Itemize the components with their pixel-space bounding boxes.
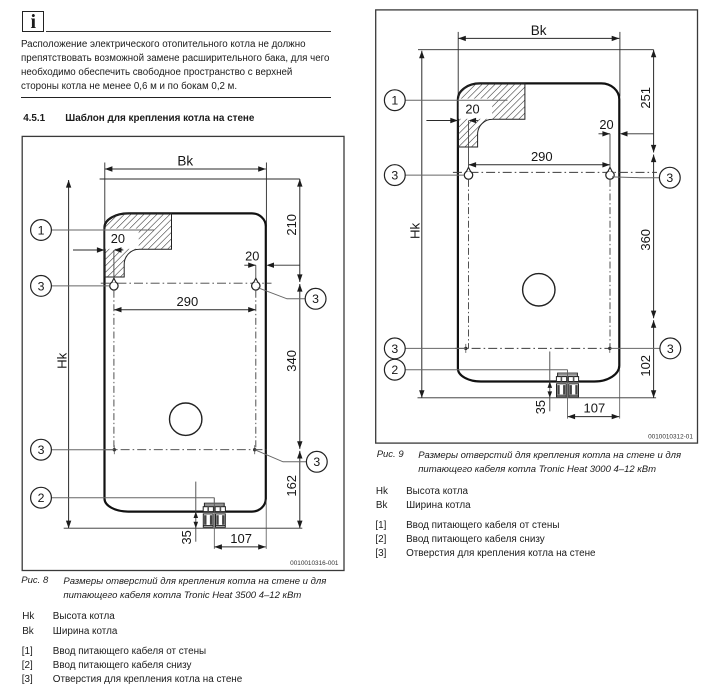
svg-text:3: 3 xyxy=(312,292,319,306)
svg-text:3: 3 xyxy=(666,171,673,185)
svg-text:35: 35 xyxy=(179,530,194,544)
svg-text:20: 20 xyxy=(599,117,613,132)
svg-text:2: 2 xyxy=(391,363,398,377)
svg-text:1: 1 xyxy=(391,94,398,108)
svg-text:35: 35 xyxy=(533,400,548,414)
svg-text:162: 162 xyxy=(284,475,299,497)
svg-text:Bk: Bk xyxy=(177,153,193,168)
svg-text:Hk: Hk xyxy=(54,352,69,369)
svg-text:251: 251 xyxy=(638,87,653,109)
svg-text:102: 102 xyxy=(638,355,653,377)
svg-text:290: 290 xyxy=(177,294,199,309)
svg-text:20: 20 xyxy=(111,231,125,246)
svg-text:3: 3 xyxy=(313,455,320,469)
svg-text:3: 3 xyxy=(667,342,674,356)
svg-text:3: 3 xyxy=(391,342,398,356)
svg-text:290: 290 xyxy=(531,149,553,164)
svg-text:107: 107 xyxy=(584,401,606,416)
svg-text:360: 360 xyxy=(638,229,653,251)
svg-text:210: 210 xyxy=(284,214,299,236)
svg-text:3: 3 xyxy=(391,169,398,183)
svg-text:0010010312-01: 0010010312-01 xyxy=(648,434,693,441)
svg-text:Bk: Bk xyxy=(531,23,547,38)
svg-text:107: 107 xyxy=(230,531,252,546)
svg-text:3: 3 xyxy=(38,279,45,293)
svg-text:0010010316-001: 0010010316-001 xyxy=(290,560,339,567)
svg-text:20: 20 xyxy=(245,248,259,263)
svg-text:Hk: Hk xyxy=(408,222,423,239)
svg-text:1: 1 xyxy=(38,223,45,237)
svg-text:20: 20 xyxy=(465,101,479,116)
svg-text:3: 3 xyxy=(38,443,45,457)
svg-text:2: 2 xyxy=(38,491,45,505)
svg-text:340: 340 xyxy=(284,350,299,372)
